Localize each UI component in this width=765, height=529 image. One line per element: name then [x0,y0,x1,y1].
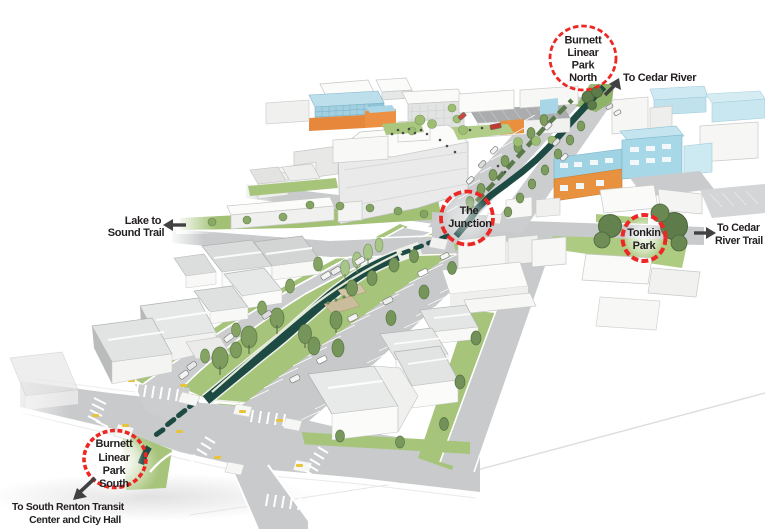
svg-text:Lake to: Lake to [125,215,162,227]
svg-text:Center and City Hall: Center and City Hall [29,515,121,526]
svg-text:Park: Park [572,60,596,72]
svg-text:To Cedar River: To Cedar River [623,72,697,84]
svg-text:Sound Trail: Sound Trail [108,227,165,239]
svg-text:Tonkin: Tonkin [627,227,661,239]
svg-text:To South Renton Transit: To South Renton Transit [12,502,125,513]
svg-text:The: The [460,205,479,217]
svg-text:River Trail: River Trail [715,235,763,247]
svg-text:Linear: Linear [98,452,130,464]
svg-text:Linear: Linear [567,47,599,59]
svg-text:North: North [569,72,597,84]
svg-text:Junction: Junction [448,218,492,230]
svg-text:Park: Park [633,240,657,252]
svg-text:South: South [99,478,129,490]
svg-text:To Cedar: To Cedar [717,222,760,234]
svg-text:Burnett: Burnett [95,438,133,450]
svg-text:Park: Park [103,465,127,477]
svg-text:Burnett: Burnett [564,35,602,47]
